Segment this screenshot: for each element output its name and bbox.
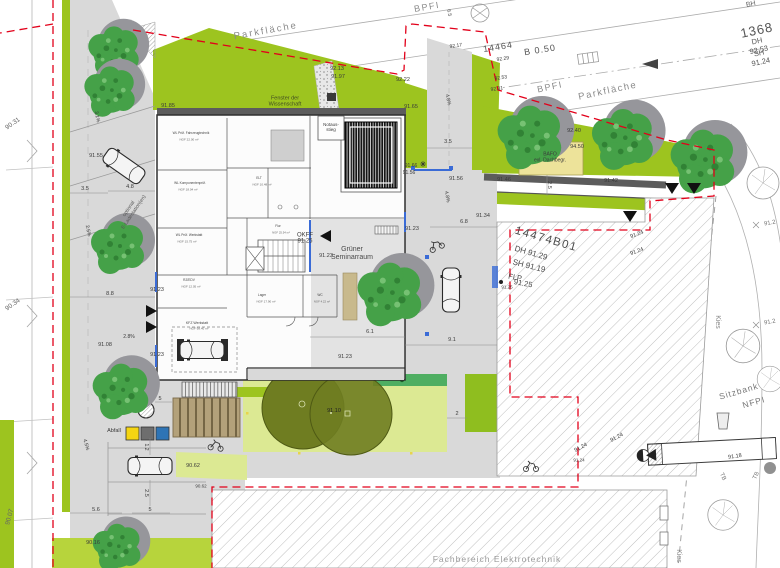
car-icon bbox=[128, 456, 172, 477]
tree-outline-icon bbox=[708, 500, 738, 530]
door-to-existing-building bbox=[492, 266, 498, 288]
post-icon bbox=[764, 462, 776, 474]
site-plan-drawing bbox=[0, 0, 780, 568]
vent-grate-icon bbox=[375, 226, 398, 234]
tree-outline-icon bbox=[726, 329, 760, 363]
skylight-grille-icon bbox=[341, 118, 401, 192]
car-icon bbox=[441, 268, 462, 312]
bin-blue-icon bbox=[156, 427, 169, 440]
elevator-icon bbox=[246, 247, 264, 270]
retaining-wall bbox=[484, 177, 666, 185]
crossing-symbol-icon bbox=[577, 52, 598, 65]
flp-marker-icon bbox=[499, 280, 503, 284]
planter-icon bbox=[717, 413, 729, 429]
bin-yellow-icon bbox=[126, 427, 139, 440]
tree-outline-icon bbox=[757, 366, 780, 392]
tree-outline-icon bbox=[747, 167, 779, 199]
stair-icon bbox=[258, 240, 305, 272]
road-direction-arrow-icon bbox=[642, 59, 658, 69]
exterior-stair-icon bbox=[182, 382, 237, 397]
tree-icon bbox=[671, 120, 748, 193]
survey-monument-icon bbox=[471, 4, 489, 22]
verge-strip bbox=[62, 0, 70, 512]
downspout-icon bbox=[623, 211, 637, 222]
downspout-icon bbox=[665, 183, 679, 194]
roof-opening bbox=[271, 130, 304, 161]
car-icon bbox=[180, 340, 224, 361]
site-plan: ParkflächeBPFI6.5BH1368DH 92.53SH 91.241… bbox=[0, 0, 780, 568]
emergency-exit-box bbox=[318, 116, 344, 140]
fachbereich-building bbox=[212, 490, 667, 568]
bin-grey-icon bbox=[141, 427, 154, 440]
bike-shelter bbox=[173, 398, 240, 437]
waste-bins bbox=[126, 427, 169, 440]
timber-deck bbox=[343, 273, 357, 320]
